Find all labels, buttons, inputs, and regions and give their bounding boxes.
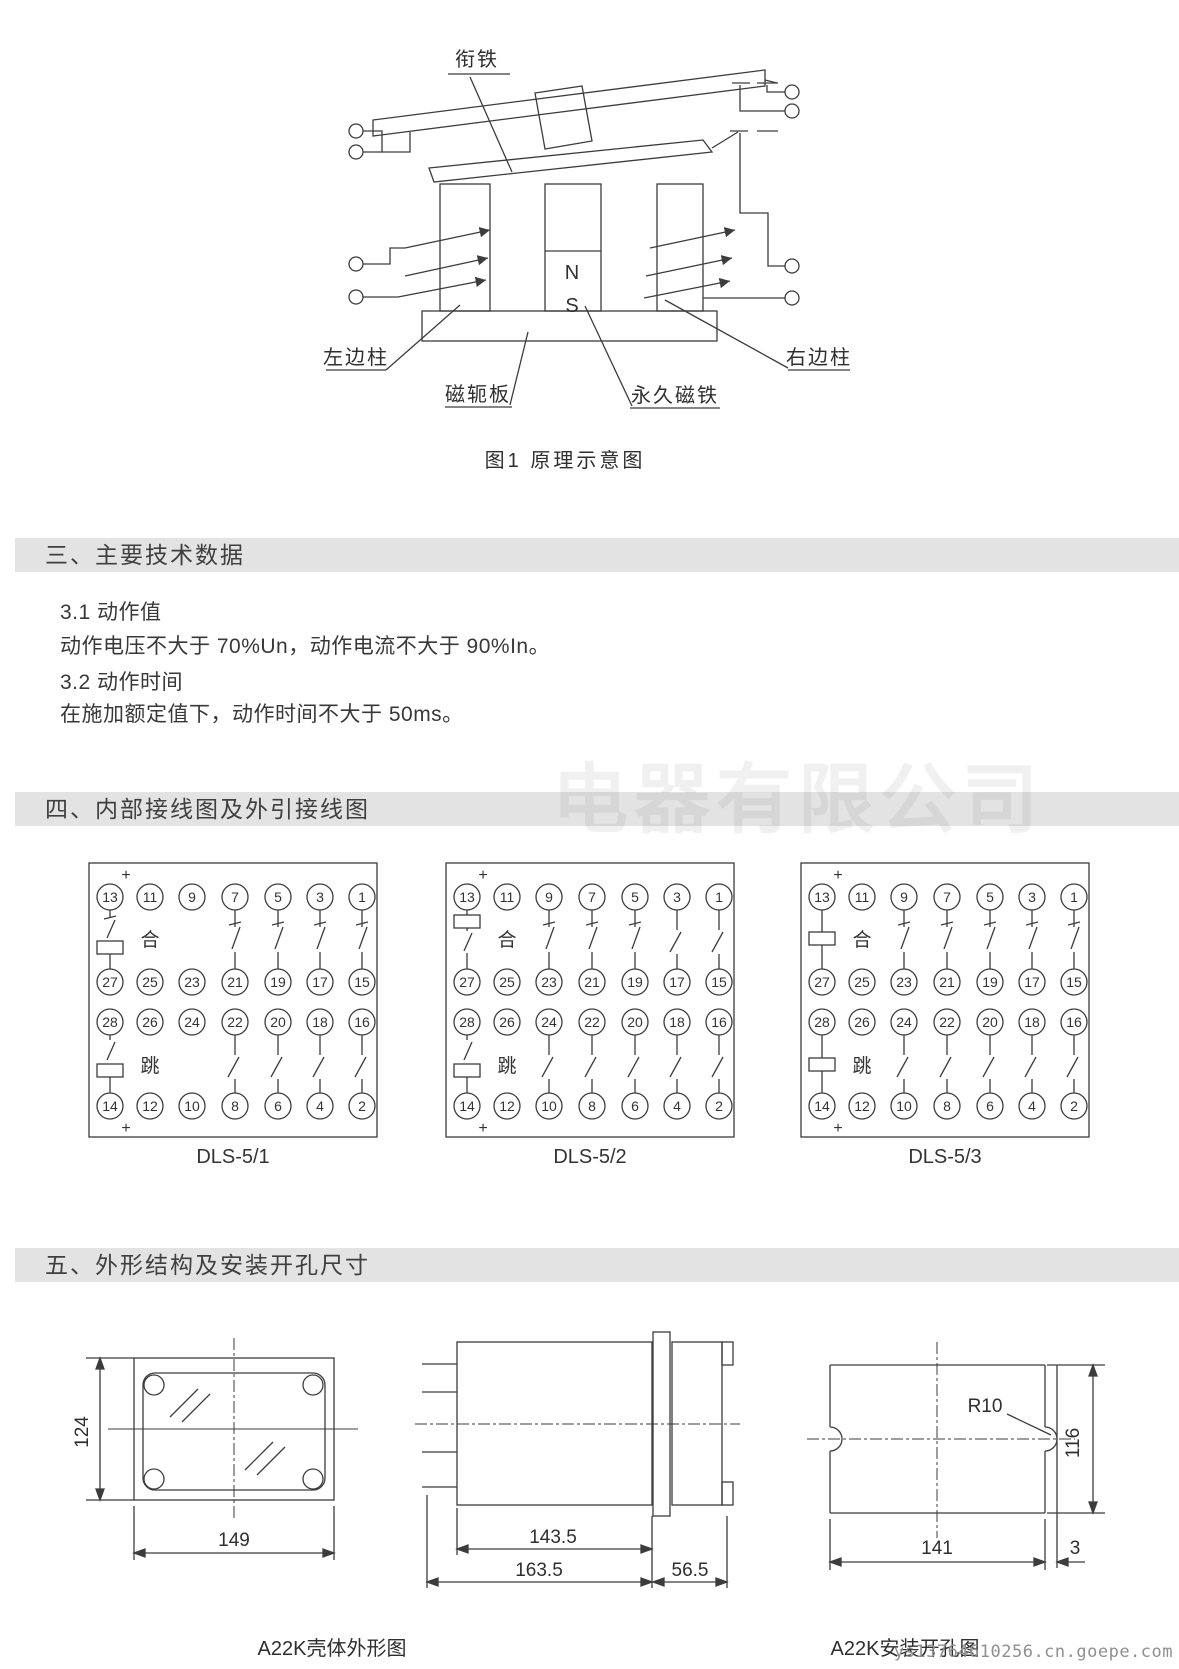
svg-text:21: 21 [939, 974, 955, 990]
outline-drawing-caption: A22K壳体外形图 [222, 1632, 442, 1661]
mounting-cutout-drawing: R10 116 141 3 [795, 1330, 1179, 1580]
svg-text:12: 12 [499, 1098, 515, 1114]
wiring-diagram-dls-5-3: ++合跳131197531272523211917152826242220181… [800, 862, 1090, 1138]
svg-text:18: 18 [669, 1014, 685, 1030]
svg-text:14: 14 [102, 1098, 118, 1114]
svg-text:14: 14 [459, 1098, 475, 1114]
dim-cutout-height: 116 [1063, 1428, 1084, 1458]
svg-text:10: 10 [896, 1098, 912, 1114]
right-coil [657, 184, 703, 311]
svg-text:14: 14 [814, 1098, 830, 1114]
svg-text:24: 24 [184, 1014, 200, 1030]
right-column-label: 右边柱 [786, 346, 852, 369]
svg-text:16: 16 [1066, 1014, 1082, 1030]
svg-text:6: 6 [986, 1098, 994, 1114]
svg-text:7: 7 [231, 889, 239, 905]
svg-text:1: 1 [715, 889, 723, 905]
terminal-circle [785, 85, 799, 99]
dim-front-height: 124 [72, 1416, 93, 1448]
dim-front-width: 149 [218, 1530, 250, 1551]
svg-text:20: 20 [982, 1014, 998, 1030]
section3-item: 在施加额定值下，动作时间不大于 50ms。 [60, 698, 464, 728]
svg-text:26: 26 [854, 1014, 870, 1030]
svg-text:11: 11 [855, 889, 870, 905]
wiring-diagram-dls-5-2: ++合跳131197531272523211917152826242220181… [445, 862, 735, 1138]
svg-text:26: 26 [499, 1014, 515, 1030]
svg-text:18: 18 [312, 1014, 328, 1030]
svg-text:+: + [478, 867, 487, 884]
figure1-caption: 图1 原理示意图 [285, 444, 845, 473]
svg-text:7: 7 [943, 889, 951, 905]
svg-text:26: 26 [142, 1014, 158, 1030]
svg-text:22: 22 [584, 1014, 600, 1030]
pole-s-label: S [565, 295, 580, 317]
ghost-watermark: 电器有限公司 [552, 738, 1044, 848]
svg-text:2: 2 [1070, 1098, 1078, 1114]
case-front-view-drawing: 124 149 [70, 1320, 380, 1580]
svg-text:19: 19 [982, 974, 998, 990]
svg-text:3: 3 [673, 889, 681, 905]
svg-text:10: 10 [541, 1098, 557, 1114]
svg-text:20: 20 [270, 1014, 286, 1030]
svg-text:3: 3 [316, 889, 324, 905]
svg-text:+: + [478, 1120, 487, 1137]
dim-radius: R10 [968, 1396, 1003, 1417]
svg-text:25: 25 [854, 974, 870, 990]
svg-text:+: + [833, 867, 842, 884]
section3-item: 3.1 动作值 [60, 596, 162, 626]
section3-item: 3.2 动作时间 [60, 666, 183, 696]
terminal-circle [349, 257, 363, 271]
dim-cutout-width: 141 [921, 1538, 953, 1559]
svg-text:+: + [833, 1120, 842, 1137]
armature-top-bar [373, 70, 765, 136]
svg-text:27: 27 [102, 974, 118, 990]
svg-text:17: 17 [312, 974, 328, 990]
svg-text:2: 2 [715, 1098, 723, 1114]
svg-text:8: 8 [588, 1098, 596, 1114]
svg-text:4: 4 [316, 1098, 324, 1114]
svg-text:23: 23 [184, 974, 200, 990]
svg-text:1: 1 [358, 889, 366, 905]
moving-armature-bar [429, 140, 712, 182]
svg-text:28: 28 [814, 1014, 830, 1030]
wiring-diagram-label: DLS-5/2 [445, 1146, 735, 1169]
svg-text:5: 5 [986, 889, 994, 905]
dim-body-length: 143.5 [529, 1527, 577, 1548]
terminal-circle [785, 291, 799, 305]
terminal-circle [785, 104, 799, 118]
svg-text:5: 5 [274, 889, 282, 905]
svg-text:28: 28 [102, 1014, 118, 1030]
svg-text:2: 2 [358, 1098, 366, 1114]
svg-text:27: 27 [814, 974, 830, 990]
yoke-plate-label: 磁轭板 [445, 383, 511, 406]
svg-text:9: 9 [545, 889, 553, 905]
svg-text:3: 3 [1028, 889, 1036, 905]
svg-text:25: 25 [499, 974, 515, 990]
svg-text:23: 23 [541, 974, 557, 990]
svg-text:21: 21 [227, 974, 243, 990]
section3-item: 动作电压不大于 70%Un，动作电流不大于 90%In。 [60, 630, 550, 660]
svg-text:5: 5 [631, 889, 639, 905]
section3-heading: 三、主要技术数据 [15, 538, 1179, 572]
svg-text:13: 13 [459, 889, 475, 905]
dim-cutout-offset: 3 [1070, 1538, 1081, 1559]
svg-text:合: 合 [852, 929, 871, 951]
svg-text:9: 9 [900, 889, 908, 905]
svg-text:15: 15 [711, 974, 727, 990]
svg-text:23: 23 [896, 974, 912, 990]
svg-text:6: 6 [274, 1098, 282, 1114]
svg-text:11: 11 [500, 889, 515, 905]
site-watermark: ys13764610256.cn.goepe.com [894, 1642, 1173, 1662]
svg-text:7: 7 [588, 889, 596, 905]
svg-text:跳: 跳 [140, 1055, 159, 1077]
svg-text:18: 18 [1024, 1014, 1040, 1030]
armature-label: 衔铁 [455, 48, 499, 71]
svg-text:10: 10 [184, 1098, 200, 1114]
svg-text:19: 19 [270, 974, 286, 990]
svg-text:4: 4 [673, 1098, 681, 1114]
svg-text:+: + [121, 1120, 130, 1137]
dim-overall-length: 163.5 [515, 1560, 563, 1581]
svg-text:+: + [121, 867, 130, 884]
svg-text:1: 1 [1070, 889, 1078, 905]
svg-text:15: 15 [1066, 974, 1082, 990]
svg-text:25: 25 [142, 974, 158, 990]
svg-text:16: 16 [711, 1014, 727, 1030]
dim-rear-length: 56.5 [672, 1560, 709, 1581]
left-coil [440, 184, 490, 311]
terminal-circle [349, 290, 363, 304]
svg-text:13: 13 [814, 889, 830, 905]
terminal-circle [349, 145, 363, 159]
permanent-magnet-label: 永久磁铁 [631, 384, 719, 407]
svg-text:27: 27 [459, 974, 475, 990]
terminal-circle [785, 259, 799, 273]
permanent-magnet-core [545, 184, 601, 311]
section5-heading: 五、外形结构及安装开孔尺寸 [15, 1248, 1179, 1282]
svg-text:跳: 跳 [852, 1055, 871, 1077]
svg-text:12: 12 [142, 1098, 158, 1114]
svg-text:24: 24 [896, 1014, 912, 1030]
svg-text:6: 6 [631, 1098, 639, 1114]
svg-text:8: 8 [231, 1098, 239, 1114]
svg-text:8: 8 [943, 1098, 951, 1114]
svg-text:跳: 跳 [497, 1055, 516, 1077]
svg-text:9: 9 [188, 889, 196, 905]
svg-text:16: 16 [354, 1014, 370, 1030]
svg-text:12: 12 [854, 1098, 870, 1114]
wiring-diagram-label: DLS-5/1 [88, 1146, 378, 1169]
svg-text:合: 合 [497, 929, 516, 951]
wiring-diagram-label: DLS-5/3 [800, 1146, 1090, 1169]
pole-n-label: N [565, 262, 581, 284]
svg-text:17: 17 [1024, 974, 1040, 990]
case-side-view-drawing: 143.5 163.5 56.5 [395, 1320, 745, 1600]
svg-text:24: 24 [541, 1014, 557, 1030]
svg-text:22: 22 [227, 1014, 243, 1030]
principle-diagram: 衔铁 N S 左边柱 磁轭板 永久磁铁 右边柱 [320, 36, 880, 470]
svg-text:15: 15 [354, 974, 370, 990]
svg-text:17: 17 [669, 974, 685, 990]
svg-text:21: 21 [584, 974, 600, 990]
svg-text:22: 22 [939, 1014, 955, 1030]
left-column-label: 左边柱 [323, 346, 389, 369]
svg-text:28: 28 [459, 1014, 475, 1030]
wiring-diagram-dls-5-1: ++合跳131197531272523211917152826242220181… [88, 862, 378, 1138]
svg-text:合: 合 [140, 929, 159, 951]
svg-text:19: 19 [627, 974, 643, 990]
terminal-circle [349, 124, 363, 138]
svg-text:4: 4 [1028, 1098, 1036, 1114]
svg-text:13: 13 [102, 889, 118, 905]
svg-text:20: 20 [627, 1014, 643, 1030]
manual-page: 衔铁 N S 左边柱 磁轭板 永久磁铁 右边柱 图1 原理示意图 三、主要技术数… [0, 0, 1179, 1669]
svg-text:11: 11 [143, 889, 158, 905]
